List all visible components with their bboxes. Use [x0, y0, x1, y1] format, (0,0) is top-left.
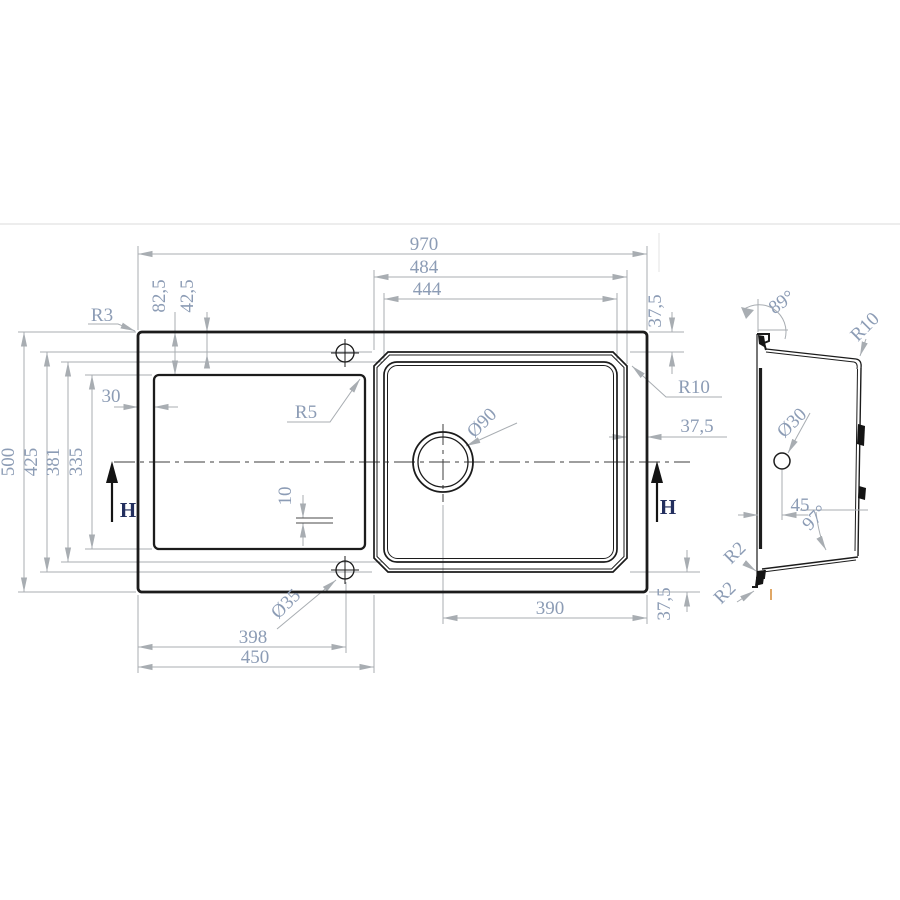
side-view: 89° R10 Ø30 45 97° R2 R2 — [710, 286, 884, 608]
groove-lines — [296, 518, 333, 523]
dim-label-10: 10 — [275, 487, 296, 506]
dim-label-37-5-top-right: 37,5 — [645, 294, 666, 327]
extension-lines — [18, 246, 700, 673]
sink-drawing-svg: H H 970 484 444 37,5 82,5 42,5 30 500 42… — [0, 0, 900, 900]
section-arrowhead-right — [651, 461, 663, 483]
section-label-h-left: H — [120, 498, 136, 522]
section-arrowhead-left — [106, 461, 118, 483]
dim-label-500: 500 — [0, 448, 19, 477]
section-arrow-right-group: H — [651, 461, 676, 522]
radius-label-r10-side: R10 — [846, 308, 883, 345]
dim-label-82-5: 82,5 — [149, 279, 170, 312]
diameter-label-drain-90: Ø90 — [463, 404, 501, 442]
angle-label-89: 89° — [765, 286, 799, 318]
side-profile — [752, 334, 866, 587]
radius-label-r2-upper: R2 — [720, 538, 751, 569]
section-arrow-left-group: H — [106, 461, 136, 522]
dim-label-970: 970 — [410, 234, 439, 255]
tap-hole-top — [331, 339, 359, 367]
dim-label-37-5-bottom-right: 37,5 — [654, 587, 675, 620]
radius-label-r5: R5 — [295, 402, 317, 423]
centerlines — [114, 424, 690, 502]
dim-label-42-5: 42,5 — [177, 279, 198, 312]
dim-label-37-5-right: 37,5 — [680, 416, 713, 437]
radius-label-r3: R3 — [91, 305, 113, 326]
dim-label-484: 484 — [410, 257, 439, 278]
side-dimension-labels: 89° R10 Ø30 45 97° R2 R2 — [710, 286, 884, 608]
dim-label-390: 390 — [536, 598, 565, 619]
dim-label-444: 444 — [413, 279, 442, 300]
dim-label-450: 450 — [241, 647, 270, 668]
top-view: H H 970 484 444 37,5 82,5 42,5 30 500 42… — [0, 234, 727, 673]
section-label-h-right: H — [660, 495, 676, 519]
diameter-label-tap-30: Ø30 — [773, 404, 811, 442]
fixing-tab-lower — [858, 486, 866, 500]
radius-label-r10: R10 — [678, 377, 710, 398]
dim-label-425: 425 — [21, 448, 42, 477]
dim-label-398: 398 — [239, 627, 268, 648]
technical-drawing-page: H H 970 484 444 37,5 82,5 42,5 30 500 42… — [0, 0, 900, 900]
tap-hole-bottom — [331, 556, 359, 584]
dim-label-30: 30 — [102, 386, 121, 407]
dim-label-381: 381 — [43, 448, 64, 477]
fixing-tab-upper — [857, 424, 865, 446]
dimension-lines — [24, 254, 727, 667]
top-lip-section — [758, 335, 766, 348]
scan-artifacts — [0, 224, 900, 600]
dim-label-335: 335 — [66, 448, 87, 477]
radius-label-r2-lower: R2 — [710, 578, 741, 609]
side-tap-hole — [774, 453, 790, 469]
